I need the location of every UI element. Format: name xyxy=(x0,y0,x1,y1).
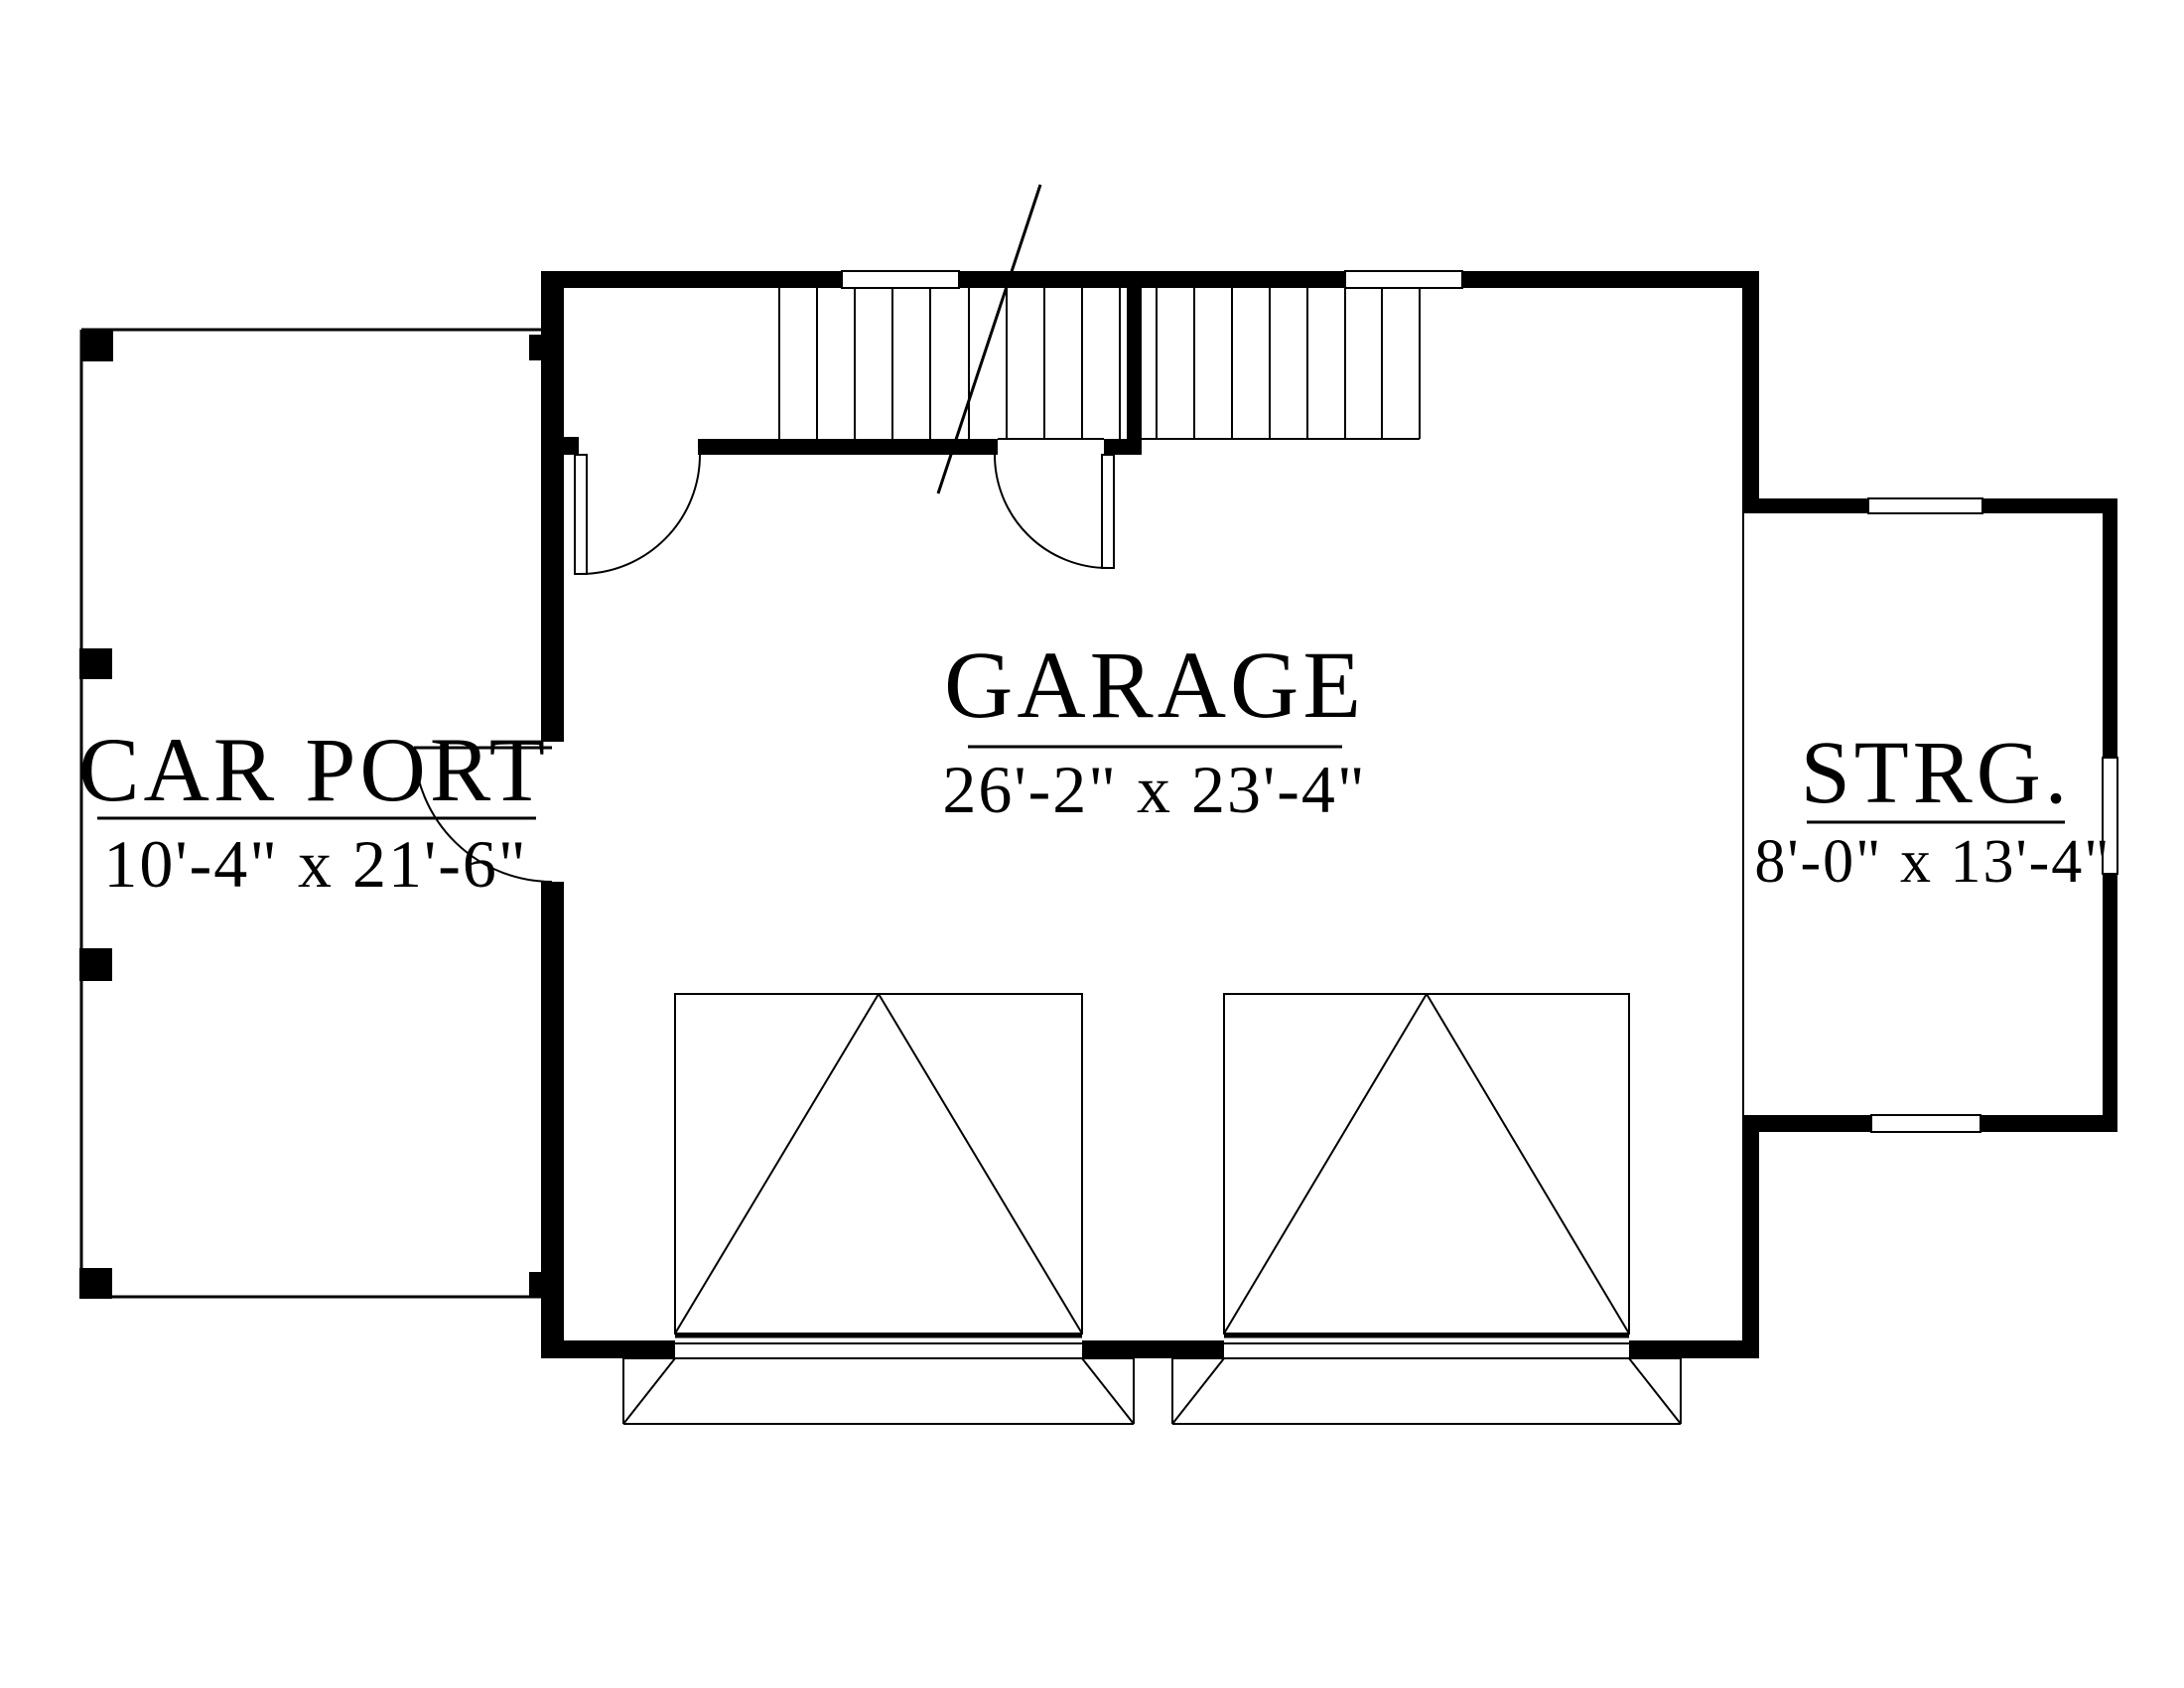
garage-top-wall-left xyxy=(541,271,842,288)
storage-bottom-wall-right xyxy=(1980,1115,2117,1132)
carport-room-label: CAR PORT xyxy=(78,719,549,820)
interior-wall-left-stub xyxy=(564,437,579,455)
interior-door-right-leaf xyxy=(1102,455,1114,568)
storage-room-dimensions: 8'-0" x 13'-4" xyxy=(1754,828,2111,896)
storage-top-window xyxy=(1868,498,1982,513)
garage-right-wall-upper xyxy=(1742,271,1759,498)
storage-top-wall-left xyxy=(1742,498,1868,513)
carport-half-post-top-right xyxy=(529,335,541,360)
garage-left-wall-upper xyxy=(541,271,564,742)
garage-bottom-wall-right xyxy=(1629,1340,1759,1358)
floor-plan: GARAGE 26'-2" x 23'-4" CAR PORT 10'-4" x… xyxy=(0,0,2184,1688)
carport-half-post-bottom-right xyxy=(529,1272,541,1298)
storage-right-wall-upper xyxy=(2103,498,2117,758)
carport-post-bottom-left xyxy=(79,1268,112,1299)
carport-room-dimensions: 10'-4" x 21'-6" xyxy=(103,826,527,902)
stair-center-wall xyxy=(1127,288,1142,455)
stair-left-run xyxy=(779,288,1120,439)
interior-door-left-leaf xyxy=(575,455,587,574)
storage-room-label: STRG. xyxy=(1801,724,2072,822)
stair-right-run xyxy=(1157,288,1420,439)
garage-top-wall-mid xyxy=(959,271,1345,288)
labels: GARAGE 26'-2" x 23'-4" CAR PORT 10'-4" x… xyxy=(78,632,2112,902)
interior-door-left-arc xyxy=(581,455,700,574)
carport-post-left-mid-lower xyxy=(79,948,112,981)
garage-bottom-wall-mid xyxy=(1082,1340,1224,1358)
driveway-apron-1 xyxy=(623,1358,1134,1424)
storage-top-wall-right xyxy=(1982,498,2117,513)
carport-post-top-left xyxy=(80,331,113,361)
garage-top-window-right xyxy=(1345,271,1462,288)
driveway-apron-2 xyxy=(1172,1358,1681,1424)
storage-right-wall-lower xyxy=(2103,874,2117,1132)
garage-top-wall-right xyxy=(1462,271,1759,288)
overhead-door-2 xyxy=(1224,994,1629,1343)
interior-walls xyxy=(564,288,1142,455)
garage-bottom-wall-left xyxy=(541,1340,675,1358)
carport-post-left-mid-upper xyxy=(79,648,112,679)
garage-doors xyxy=(623,994,1681,1424)
garage-left-wall-lower xyxy=(541,882,564,1358)
storage-bottom-window xyxy=(1871,1115,1980,1132)
storage-bottom-wall-left xyxy=(1742,1115,1871,1132)
garage-right-wall-lower xyxy=(1742,1132,1759,1358)
garage-room-dimensions: 26'-2" x 23'-4" xyxy=(942,752,1366,827)
garage-room-label: GARAGE xyxy=(944,632,1365,738)
overhead-door-1 xyxy=(675,994,1082,1343)
interior-door-right-arc xyxy=(995,455,1108,568)
garage-top-window-left xyxy=(842,271,959,288)
